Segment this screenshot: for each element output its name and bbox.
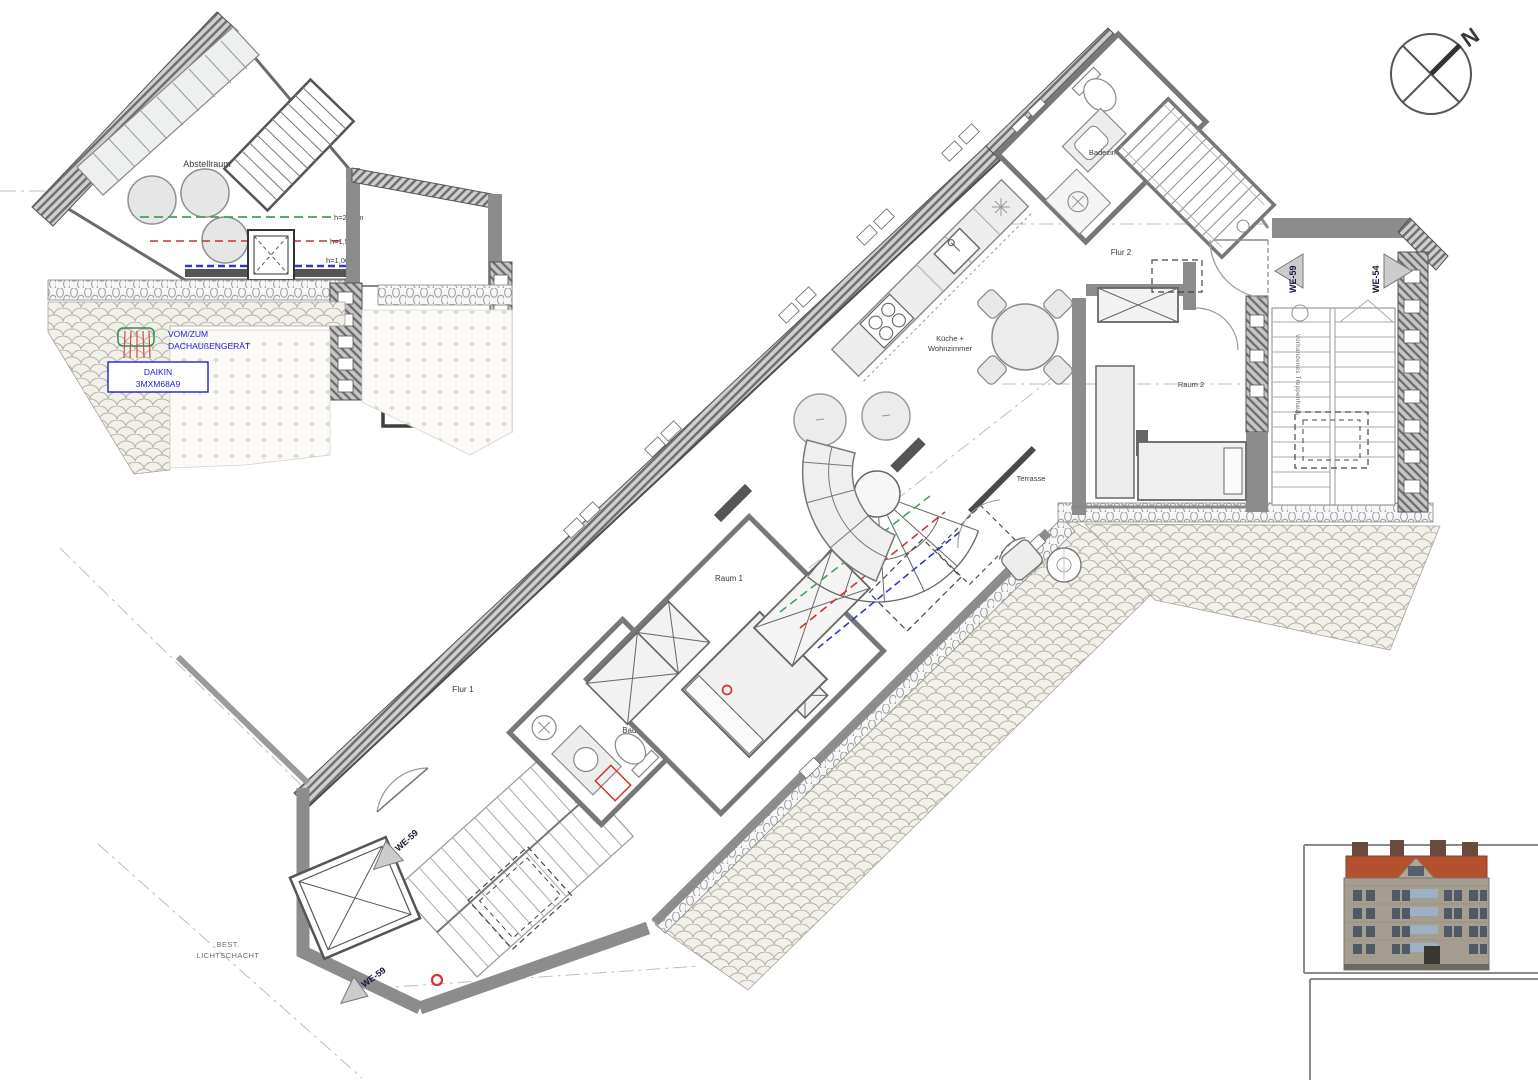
daikin-line1: DAIKIN <box>144 367 172 377</box>
lichtschacht-line2: LICHTSCHACHT <box>197 951 260 960</box>
room-label-flur2: Flur 2 <box>1111 248 1132 257</box>
pediment-window <box>1408 866 1424 876</box>
raum2-west-wall <box>1072 298 1086 515</box>
building-elevation <box>1344 840 1489 970</box>
raum2-wardrobe <box>1098 288 1178 322</box>
floorplan-canvas: h=2,00m h=1,50m h=1,00m <box>0 0 1538 1080</box>
daikin-line2: 3MXM68A9 <box>136 379 181 389</box>
raum2-shelf <box>1096 366 1134 498</box>
we54-label-entry: WE-54 <box>1371 265 1381 293</box>
room-label-raum1: Raum 1 <box>715 574 744 583</box>
plinth <box>1344 964 1489 970</box>
hvac-route-line2: DACHAUßENGERÄT <box>168 341 250 351</box>
room-label-raum2: Raum 2 <box>1178 380 1204 389</box>
lichtschacht-line1: BEST. <box>217 940 240 949</box>
room-label-abstellraum: Abstellraum <box>183 159 231 169</box>
we59-label-entry: WE-59 <box>1288 265 1298 293</box>
shaft-box <box>248 230 294 280</box>
hvac-route-line1: VOM/ZUM <box>168 329 208 339</box>
room-label-kueche2: Wohnzimmer <box>928 344 973 353</box>
entry-corridor-wall <box>1272 218 1410 238</box>
room-label-terrasse: Terrasse <box>1017 474 1046 483</box>
insulation-band-2 <box>378 285 512 305</box>
stair-label-right: Vorhandenes Treppenhaus <box>1294 334 1300 415</box>
terrace-table <box>1047 548 1081 582</box>
insulation-band <box>48 280 345 300</box>
room-label-flur1: Flur 1 <box>452 684 474 694</box>
raum2-bed <box>1138 442 1246 500</box>
east-wall <box>1398 252 1428 512</box>
existing-stair-right: Vorhandenes Treppenhaus <box>1272 300 1395 505</box>
dining-table <box>992 304 1058 370</box>
red-marker-bottom <box>432 975 442 985</box>
raum2-door-post <box>1183 262 1196 310</box>
room-label-kueche1: Küche + <box>936 334 964 343</box>
